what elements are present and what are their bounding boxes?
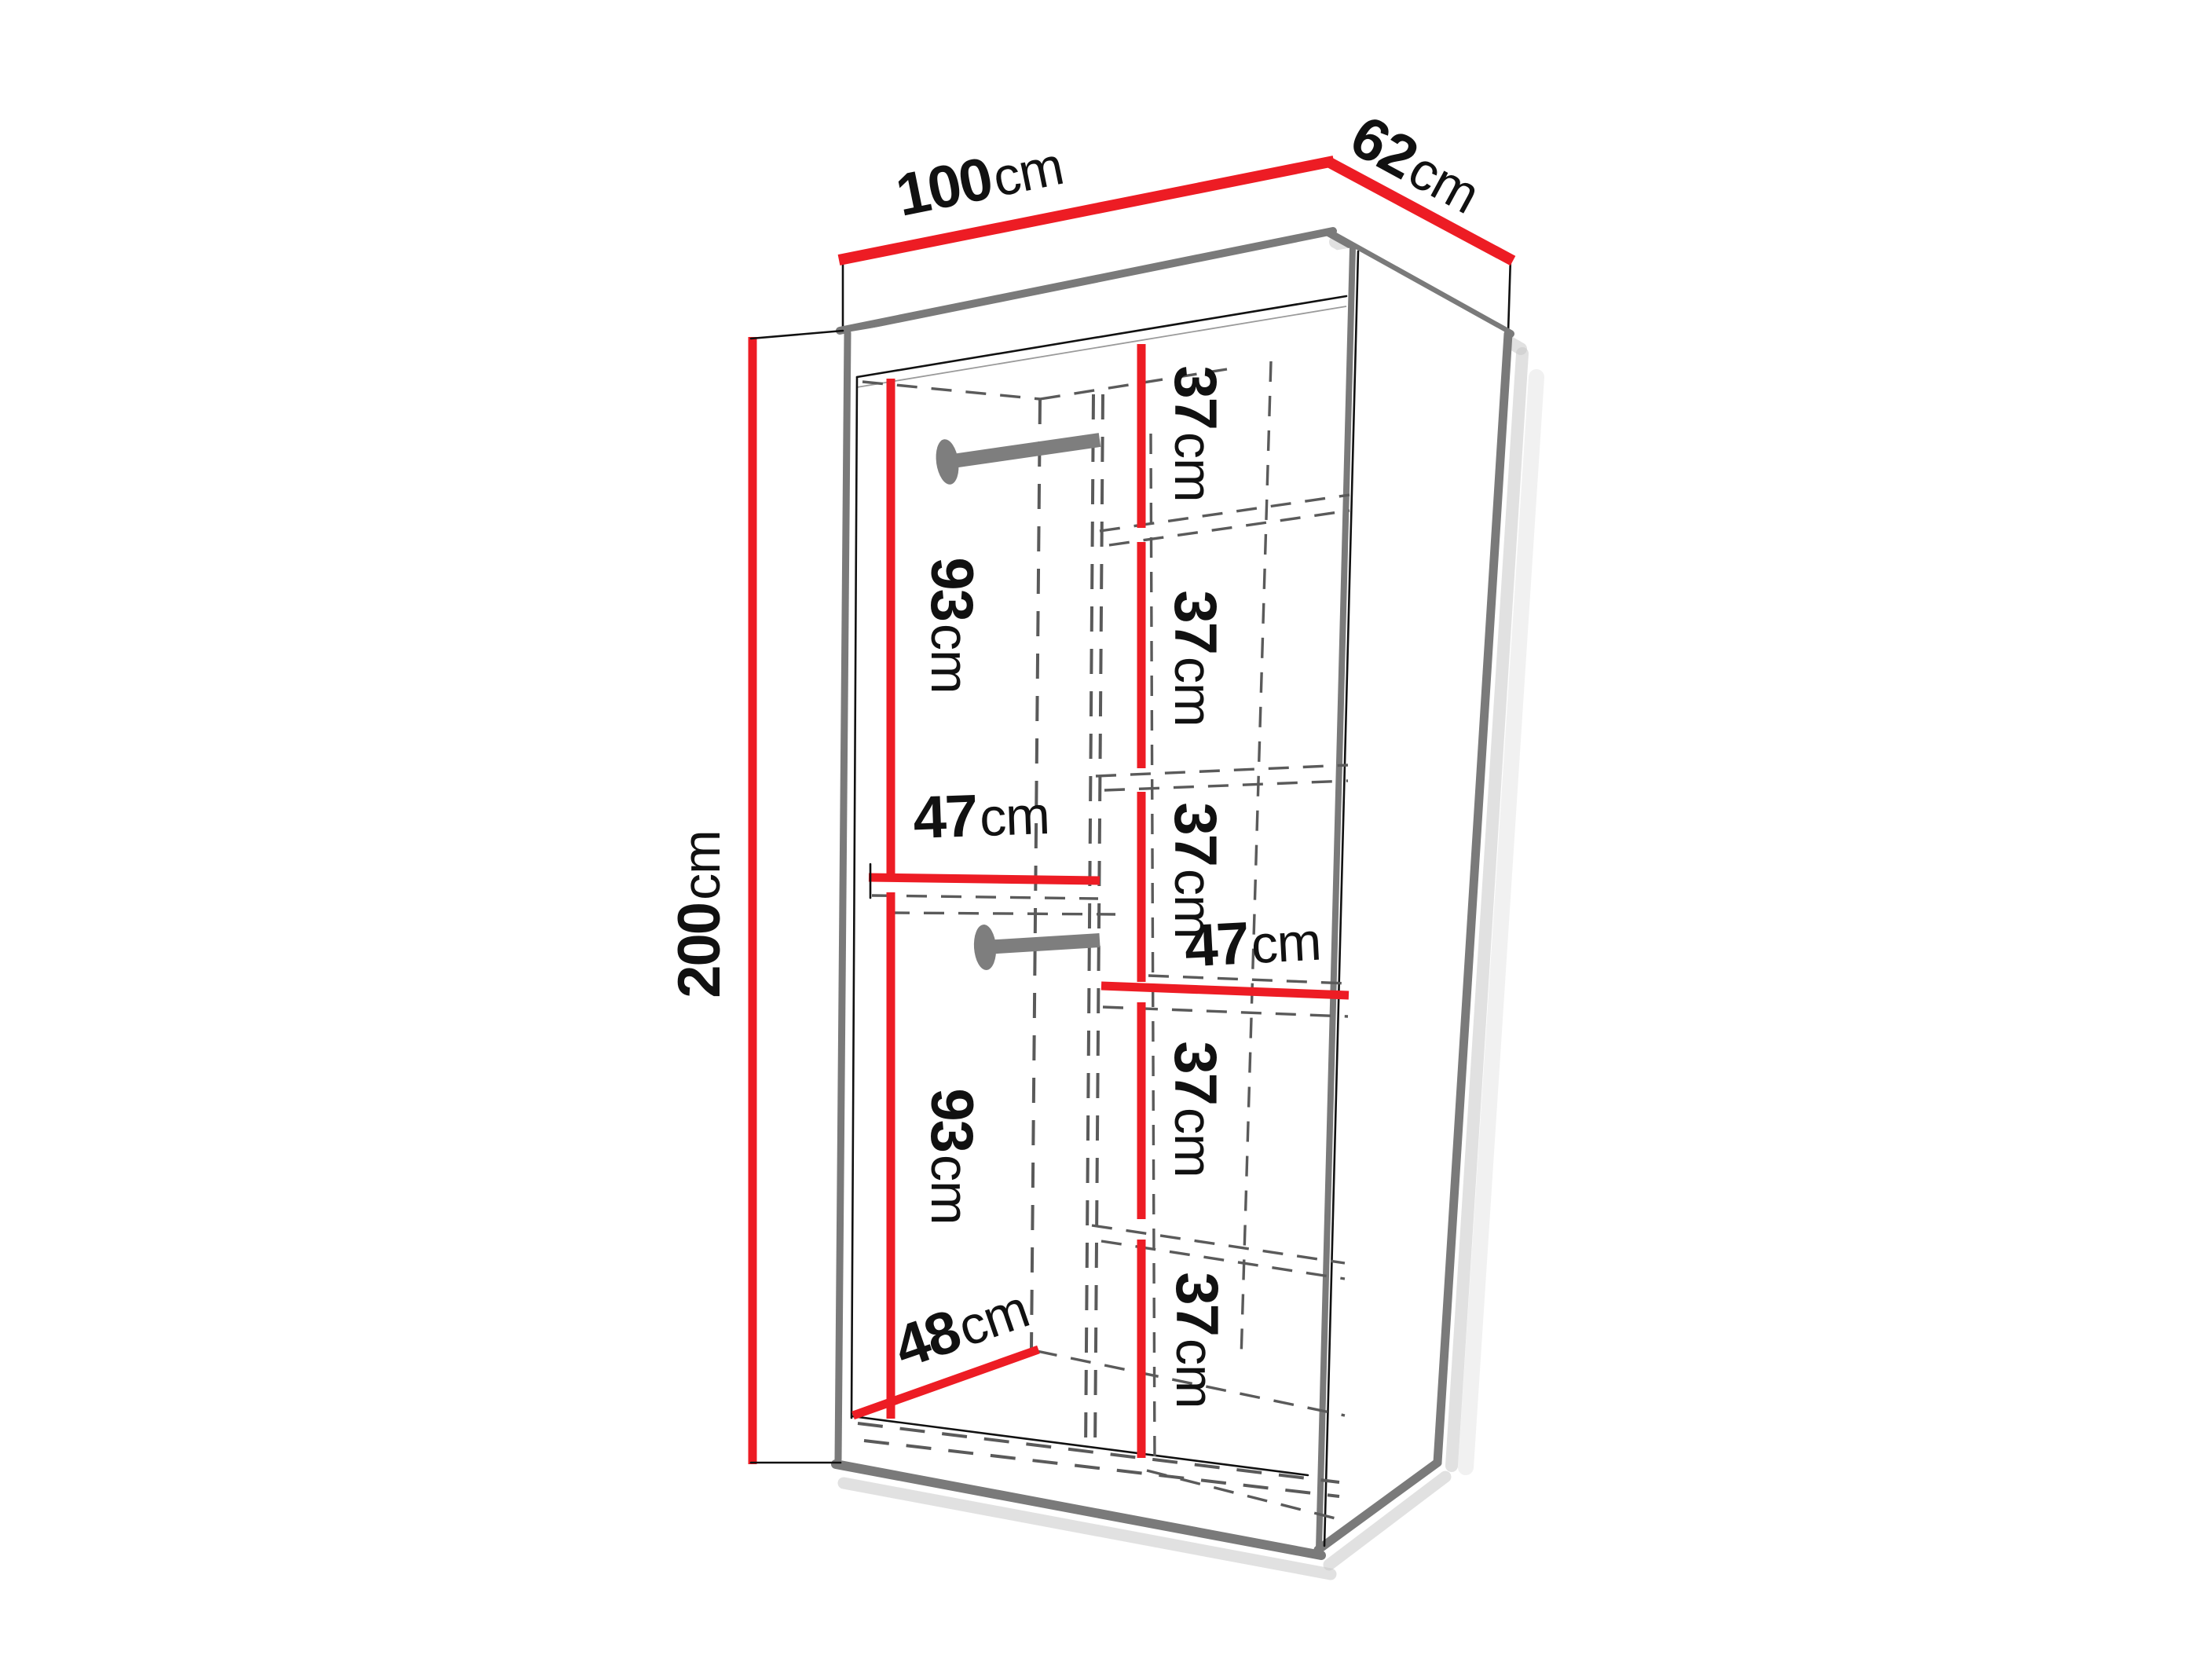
height-label: 200cm: [666, 830, 733, 998]
shelf-gap-2-label: 37cm: [1162, 590, 1229, 726]
left-width-label: 47cm: [912, 780, 1050, 851]
wardrobe-dimension-diagram: 100cm 62cm 200cm 93cm 93cm 47cm 47cm 48c…: [0, 0, 2212, 1659]
shelf-gap-1-label: 37cm: [1162, 365, 1229, 501]
height-extension-top: [751, 331, 843, 339]
left-width-dimension-line: [869, 877, 1100, 881]
shelf-gap-3-label: 37cm: [1162, 802, 1229, 938]
upper-hanging-label: 93cm: [918, 557, 985, 693]
lower-hanging-label: 93cm: [918, 1088, 985, 1224]
shelf-gap-5-label: 37cm: [1163, 1272, 1230, 1408]
shelf-gap-4-label: 37cm: [1162, 1041, 1229, 1177]
diagram-canvas: 100cm 62cm 200cm 93cm 93cm 47cm 47cm 48c…: [0, 0, 2212, 1659]
lower-rod-bar: [985, 940, 1100, 947]
